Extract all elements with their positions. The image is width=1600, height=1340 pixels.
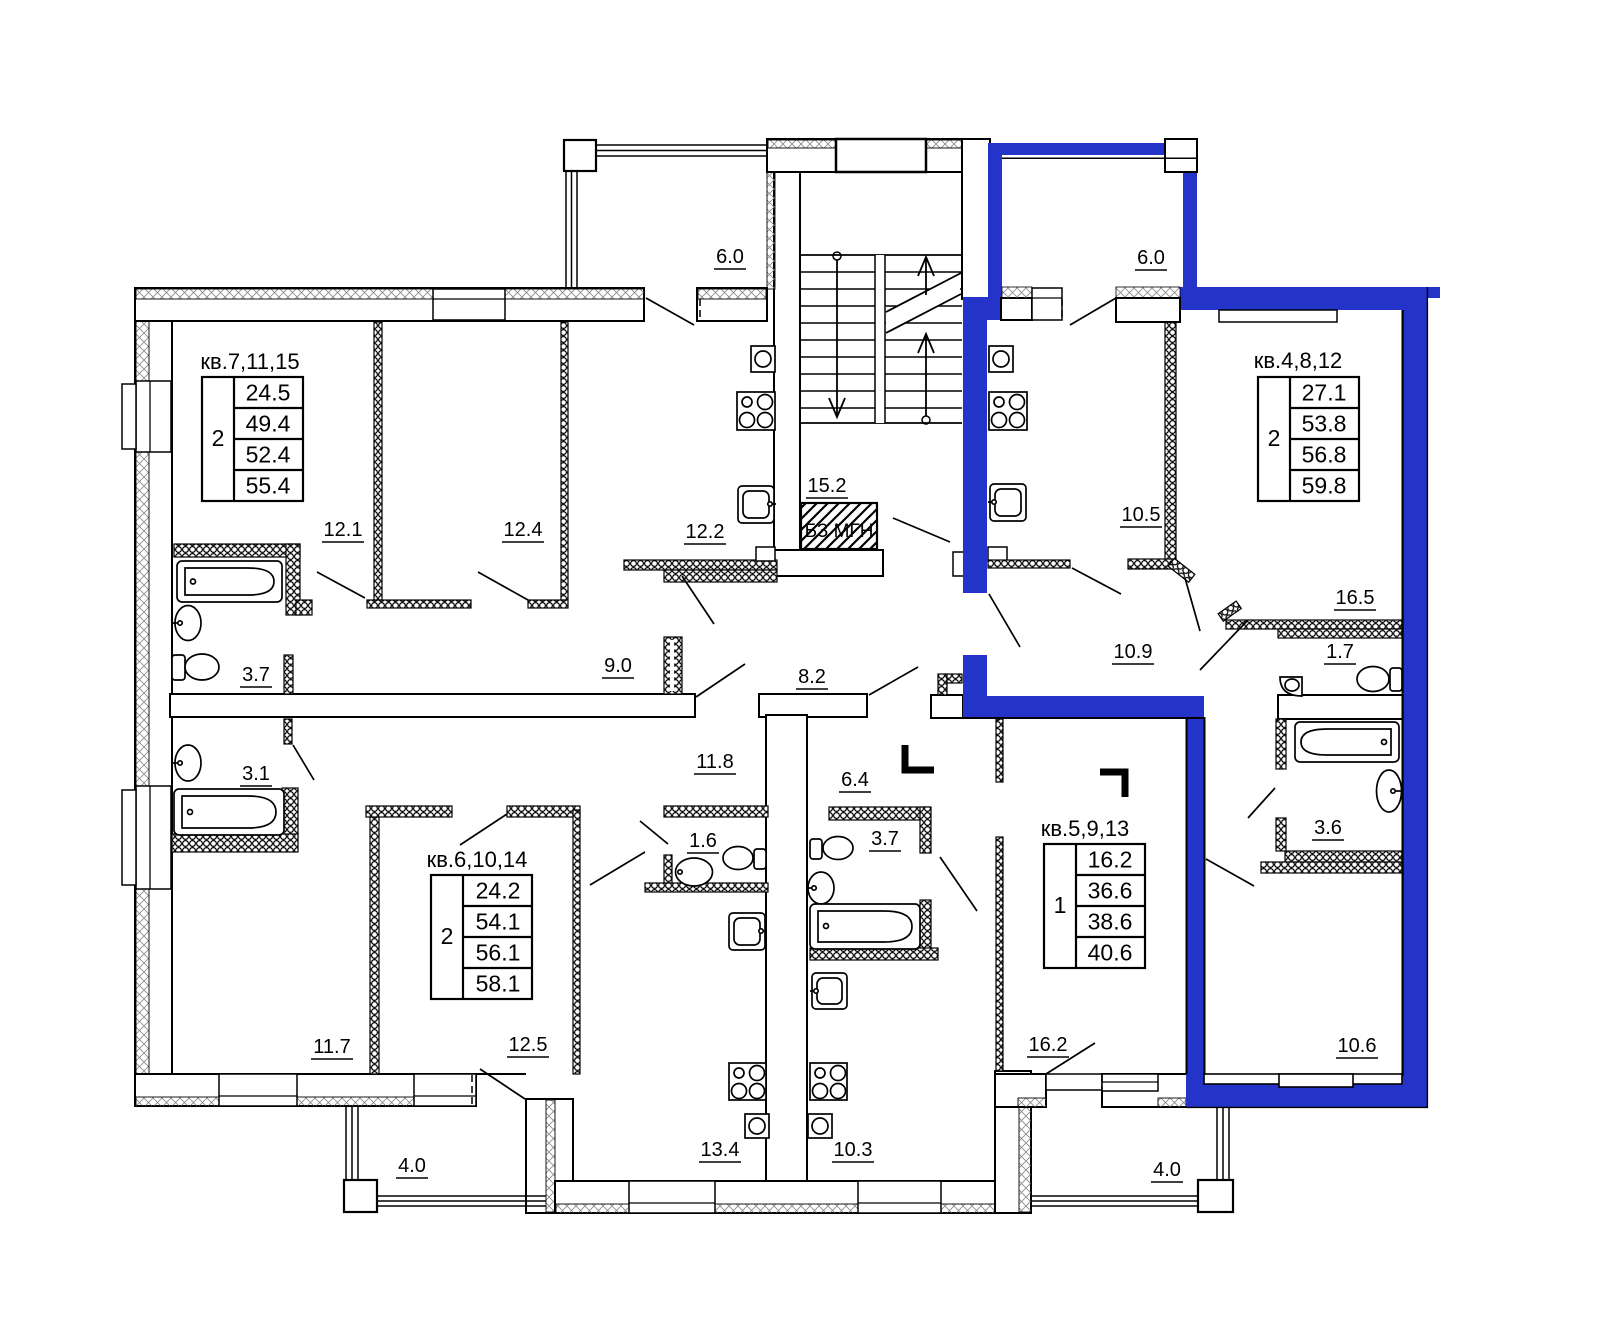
svg-text:12.2: 12.2 [686, 521, 725, 543]
svg-text:10.3: 10.3 [834, 1139, 873, 1161]
svg-text:БЗ МГН: БЗ МГН [805, 521, 874, 542]
svg-text:кв.7,11,15: кв.7,11,15 [200, 349, 299, 374]
svg-text:58.1: 58.1 [476, 971, 521, 997]
svg-text:10.9: 10.9 [1114, 641, 1153, 663]
svg-text:9.0: 9.0 [604, 655, 632, 677]
svg-text:54.1: 54.1 [476, 909, 521, 935]
svg-text:4.0: 4.0 [398, 1155, 426, 1177]
svg-text:1.6: 1.6 [689, 830, 717, 852]
svg-text:кв.4,8,12: кв.4,8,12 [1254, 348, 1343, 373]
svg-text:10.5: 10.5 [1122, 504, 1161, 526]
svg-text:53.8: 53.8 [1302, 411, 1347, 437]
svg-text:1: 1 [1054, 892, 1067, 918]
svg-text:16.5: 16.5 [1336, 587, 1375, 609]
svg-text:15.2: 15.2 [808, 475, 847, 497]
svg-text:3.6: 3.6 [1314, 817, 1342, 839]
svg-text:кв.6,10,14: кв.6,10,14 [427, 847, 528, 872]
svg-text:13.4: 13.4 [701, 1139, 740, 1161]
svg-text:59.8: 59.8 [1302, 473, 1347, 499]
svg-text:49.4: 49.4 [246, 411, 291, 437]
svg-text:3.7: 3.7 [871, 828, 899, 850]
svg-text:12.1: 12.1 [324, 519, 363, 541]
svg-text:27.1: 27.1 [1302, 380, 1347, 406]
svg-text:40.6: 40.6 [1088, 940, 1133, 966]
svg-text:24.5: 24.5 [246, 380, 291, 406]
svg-text:4.0: 4.0 [1153, 1159, 1181, 1181]
svg-text:2: 2 [212, 425, 225, 451]
svg-text:36.6: 36.6 [1088, 878, 1133, 904]
svg-text:55.4: 55.4 [246, 473, 291, 499]
svg-text:1.7: 1.7 [1326, 641, 1354, 663]
svg-text:16.2: 16.2 [1029, 1034, 1068, 1056]
svg-text:16.2: 16.2 [1088, 847, 1133, 873]
svg-text:3.7: 3.7 [242, 664, 270, 686]
svg-text:2: 2 [441, 923, 454, 949]
svg-text:10.6: 10.6 [1338, 1035, 1377, 1057]
svg-text:12.5: 12.5 [509, 1034, 548, 1056]
svg-text:3.1: 3.1 [242, 763, 270, 785]
svg-text:38.6: 38.6 [1088, 909, 1133, 935]
svg-text:12.4: 12.4 [504, 519, 543, 541]
svg-text:11.7: 11.7 [313, 1036, 350, 1058]
svg-text:11.8: 11.8 [696, 751, 733, 773]
svg-text:6.0: 6.0 [716, 246, 744, 268]
svg-text:6.0: 6.0 [1137, 247, 1165, 269]
svg-text:56.8: 56.8 [1302, 442, 1347, 468]
svg-text:8.2: 8.2 [798, 666, 826, 688]
svg-text:6.4: 6.4 [841, 769, 869, 791]
svg-text:52.4: 52.4 [246, 442, 291, 468]
svg-text:кв.5,9,13: кв.5,9,13 [1041, 816, 1130, 841]
svg-text:2: 2 [1268, 425, 1281, 451]
svg-text:56.1: 56.1 [476, 940, 521, 966]
svg-text:24.2: 24.2 [476, 878, 521, 904]
